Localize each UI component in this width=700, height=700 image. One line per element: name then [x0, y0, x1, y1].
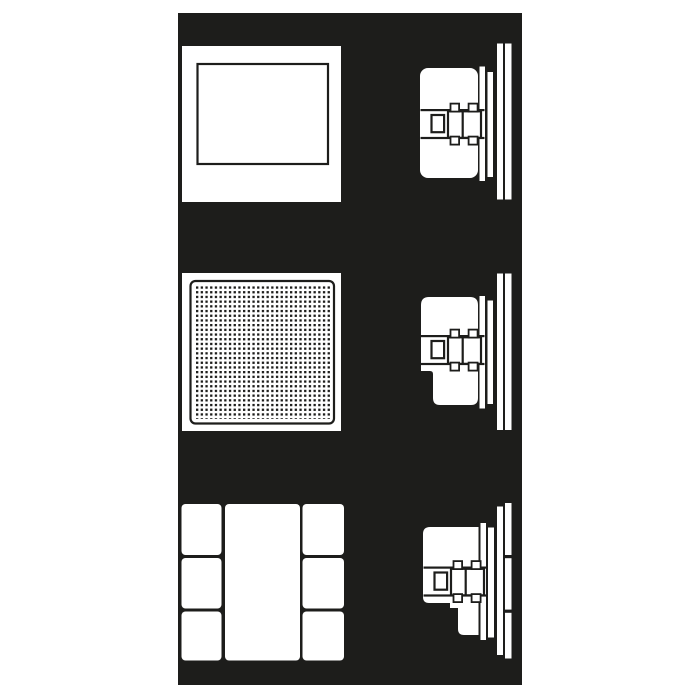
- row-1-surface-frame: [182, 44, 512, 203]
- grille-perforation-field: [196, 286, 331, 419]
- tile-left-1: [182, 504, 222, 555]
- row-2-perforated-grille: [182, 273, 512, 431]
- trim-ring-outer: [488, 72, 494, 177]
- wall-line-outer: [505, 503, 512, 659]
- surface-frame-front-view: [182, 46, 341, 202]
- trim-ring-outer: [488, 301, 494, 405]
- wall-line-inner: [497, 507, 503, 656]
- wall-seam-2: [505, 610, 512, 613]
- dark-plate-background: [178, 13, 522, 685]
- grille-front-view: [182, 273, 341, 431]
- trim-ring-outer: [488, 528, 494, 638]
- diagram-svg: [178, 13, 522, 685]
- product-diagram-image: [0, 0, 700, 700]
- faceplate-side-view: [423, 503, 512, 659]
- wall-line-inner: [497, 274, 503, 431]
- tile-left-2: [182, 558, 222, 609]
- wall-seam-1: [505, 555, 512, 558]
- wall-line-outer: [505, 274, 512, 431]
- tile-left-3: [182, 612, 222, 661]
- wall-line-outer: [505, 44, 512, 200]
- grille-side-view: [421, 274, 512, 431]
- tile-right-3: [303, 612, 345, 661]
- faceplate-front-view: [182, 504, 345, 661]
- frame-window-outline: [198, 64, 329, 164]
- surface-frame-side-view: [420, 44, 512, 200]
- tile-right-2: [303, 558, 345, 609]
- tile-right-1: [303, 504, 345, 555]
- tile-center: [225, 504, 300, 661]
- wall-line-inner: [497, 44, 503, 200]
- row-3-modular-faceplate: [182, 503, 513, 661]
